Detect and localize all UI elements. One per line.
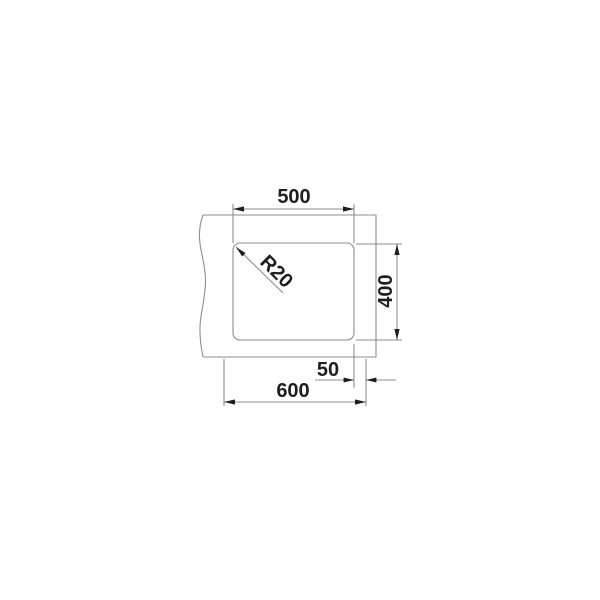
rim-offset-arrow-left <box>344 378 354 383</box>
bowl-depth-label: 400 <box>375 274 397 307</box>
bowl-width-arrow-right <box>343 206 354 211</box>
dimension-rim-offset: 50 <box>315 344 396 388</box>
bowl-depth-arrow-bottom <box>394 329 399 340</box>
dimension-bowl-depth: 400 <box>356 244 402 340</box>
corner-radius-callout: R20 <box>236 247 297 293</box>
bowl-depth-arrow-top <box>394 244 399 255</box>
corner-radius-label: R20 <box>255 251 297 293</box>
overall-width-label: 600 <box>276 380 309 402</box>
overall-width-arrow-left <box>224 399 235 404</box>
rim-offset-arrow-right <box>366 378 376 383</box>
bowl-width-label: 500 <box>277 186 310 208</box>
overall-width-arrow-right <box>355 399 366 404</box>
rim-offset-label: 50 <box>317 359 339 381</box>
countertop-break-line <box>199 215 205 357</box>
countertop-outline <box>203 215 376 357</box>
bowl-width-extension-lines <box>233 204 354 243</box>
bowl-width-arrow-left <box>233 206 244 211</box>
dimension-overall-width: 600 <box>224 359 366 406</box>
bowl-outline <box>233 243 354 340</box>
sink-technical-drawing: 500 400 50 600 R20 <box>0 0 600 600</box>
